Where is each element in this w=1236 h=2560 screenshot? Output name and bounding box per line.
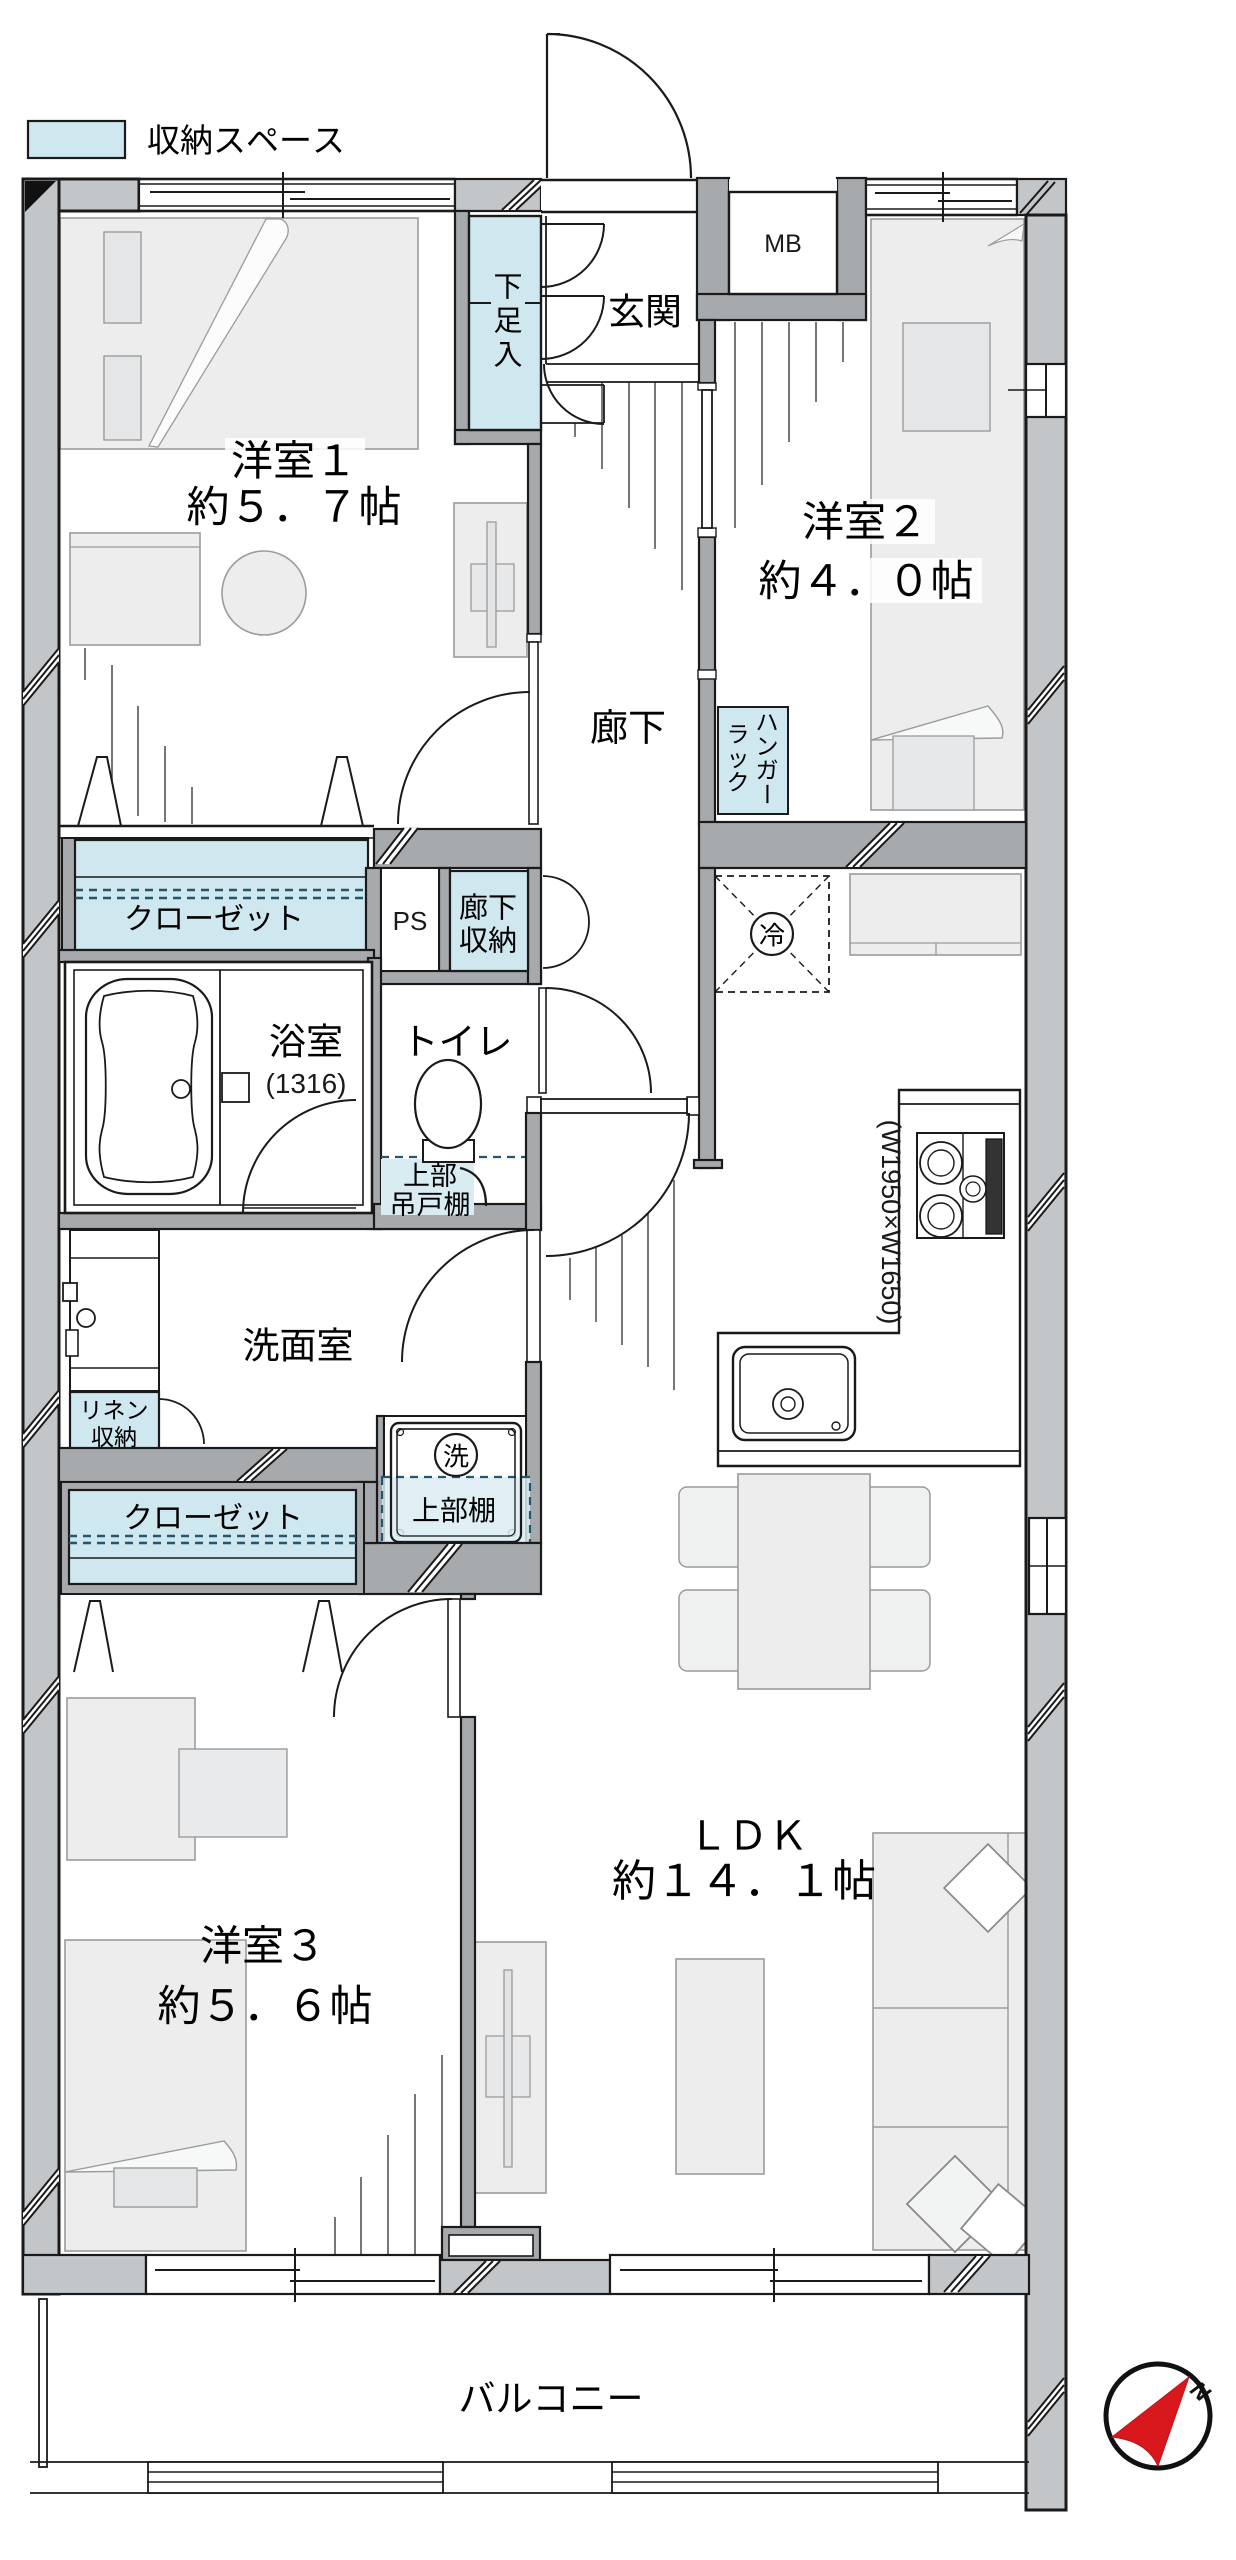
svg-text:(1316): (1316) [266, 1068, 347, 1099]
svg-text:MB: MB [764, 230, 802, 258]
svg-text:PS: PS [393, 906, 428, 936]
svg-text:(W1950×W1650): (W1950×W1650) [876, 1120, 906, 1325]
